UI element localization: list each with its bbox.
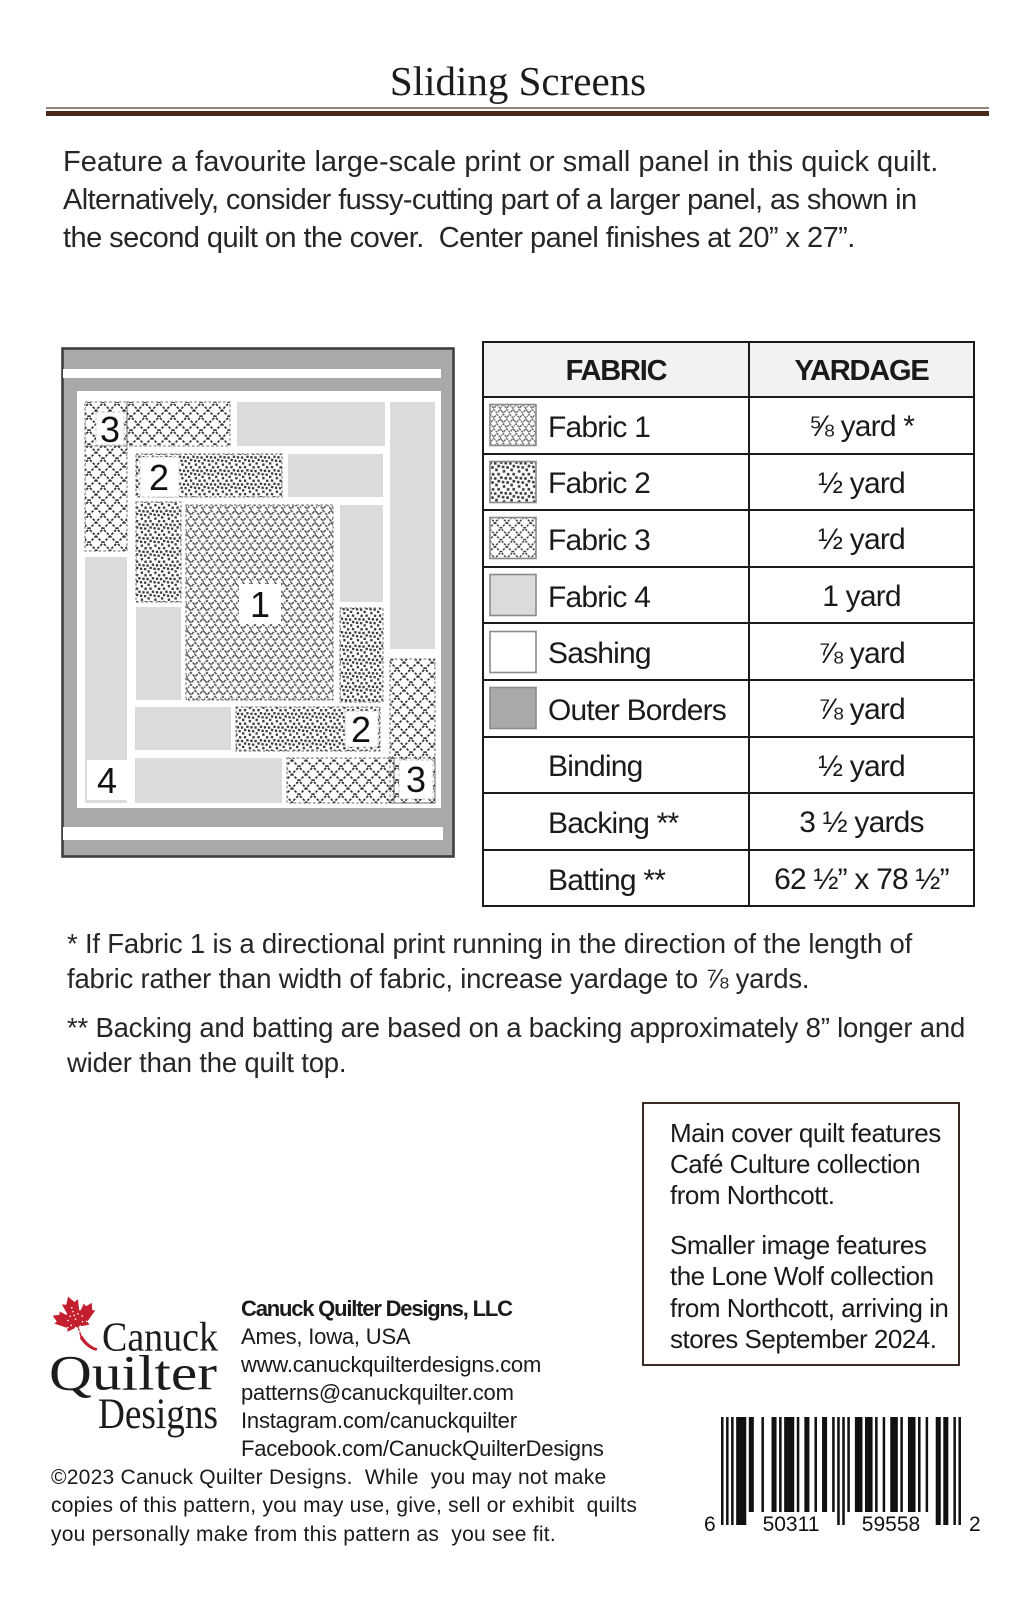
svg-text:4: 4 (97, 760, 117, 801)
svg-text:6: 6 (704, 1513, 716, 1536)
svg-text:1: 1 (250, 584, 270, 625)
svg-text:2: 2 (351, 709, 371, 750)
svg-text:2: 2 (969, 1513, 981, 1536)
svg-text:3: 3 (406, 759, 426, 800)
svg-text:50311: 50311 (763, 1513, 820, 1536)
svg-text:3: 3 (100, 409, 120, 450)
svg-text:2: 2 (149, 457, 169, 498)
svg-text:59558: 59558 (862, 1513, 920, 1536)
svg-text:Designs: Designs (98, 1391, 218, 1438)
